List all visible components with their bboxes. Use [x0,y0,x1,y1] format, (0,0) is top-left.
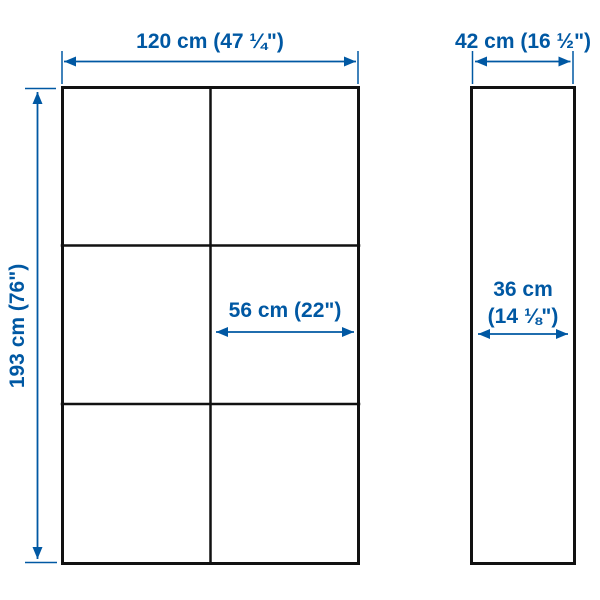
dimension-annotations: 120 cm (47 ¼") 193 cm (76") 56 cm (22") … [6,30,591,563]
product-dimension-illustration: 120 cm (47 ¼") 193 cm (76") 56 cm (22") … [0,0,600,600]
cell-width-dimension: 56 cm (22") [216,299,354,332]
width-dimension-label: 120 cm (47 ¼") [136,30,284,53]
height-dimension-label: 193 cm (76") [6,264,29,388]
width-dimension: 120 cm (47 ¼") [62,30,358,84]
inner-depth-dimension-label-line1: 36 cm [493,278,553,301]
cell-width-dimension-label: 56 cm (22") [229,299,342,322]
cabinet-front-view [62,88,359,564]
dimension-diagram: 120 cm (47 ¼") 193 cm (76") 56 cm (22") … [0,0,600,600]
depth-dimension-label: 42 cm (16 ½") [455,30,591,53]
height-dimension: 193 cm (76") [6,89,57,563]
inner-depth-dimension-label-line2: (14 ⅛") [488,305,559,328]
depth-dimension: 42 cm (16 ½") [455,30,591,84]
inner-depth-dimension: 36 cm (14 ⅛") [478,278,568,334]
